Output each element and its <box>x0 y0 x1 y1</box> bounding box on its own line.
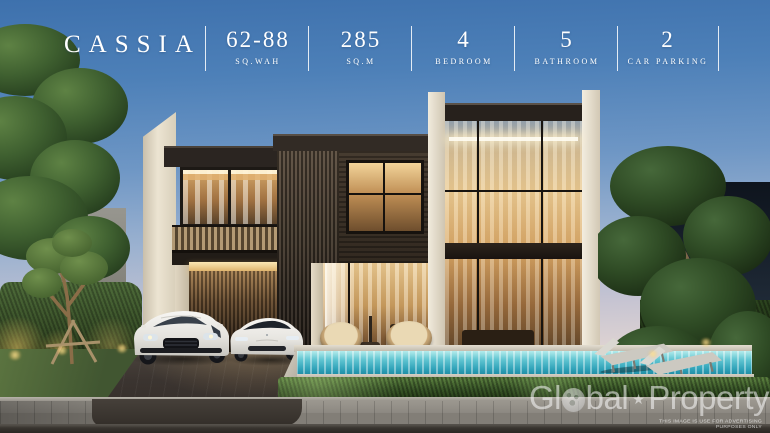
spec-label: SQ.WAH <box>212 57 304 66</box>
disclaimer-text: THIS IMAGE IS USE FOR ADVERTISING PURPOS… <box>638 418 762 429</box>
spec-bathroom: 5 BATHROOM <box>521 28 613 66</box>
glass-frame <box>445 190 582 192</box>
globe-icon <box>562 388 585 412</box>
window-mullion <box>348 193 422 195</box>
watermark-text: bal <box>586 379 629 417</box>
divider <box>718 26 719 71</box>
spec-value: 5 <box>521 28 613 52</box>
spec-label: BATHROOM <box>521 57 613 66</box>
specs-bar: CASSIA 62-88 SQ.WAH 285 SQ.M 4 BEDROOM 5… <box>0 0 770 86</box>
balcony-slat-railing <box>172 225 290 253</box>
brand-name: CASSIA <box>56 31 176 59</box>
roof-overhang-left <box>164 146 290 167</box>
garden-light <box>116 344 128 353</box>
driveway-apron <box>92 399 302 426</box>
floor-slab-band <box>445 243 582 259</box>
interior-ceiling-light <box>449 137 578 141</box>
window-mullion <box>228 168 231 226</box>
porsche-suv <box>128 296 236 366</box>
spec-value: 285 <box>315 28 407 52</box>
spec-label: SQ.M <box>315 57 407 66</box>
garden-light <box>56 346 68 355</box>
divider <box>411 26 412 71</box>
garden-light <box>648 350 658 358</box>
spec-parking: 2 CAR PARKING <box>622 28 714 66</box>
divider <box>514 26 515 71</box>
young-tree-with-supports <box>22 228 122 368</box>
spec-value: 4 <box>418 28 510 52</box>
garden-light <box>8 350 22 360</box>
glass-frame <box>477 121 479 358</box>
property-advertisement: Glbal★Property THIS IMAGE IS USE FOR ADV… <box>0 0 770 433</box>
watermark-text: Gl <box>529 379 561 417</box>
spec-sqm: 285 SQ.M <box>315 28 407 66</box>
divider <box>308 26 309 71</box>
divider <box>617 26 618 71</box>
double-height-glass-facade <box>445 121 582 358</box>
window-mullion <box>383 162 385 232</box>
glass-frame <box>541 121 543 358</box>
garden-light <box>700 338 712 347</box>
spec-label: CAR PARKING <box>622 57 714 66</box>
watermark-text: Property <box>648 379 769 417</box>
spec-label: BEDROOM <box>418 57 510 66</box>
spec-area: 62-88 SQ.WAH <box>212 28 304 66</box>
glass-facade-header <box>445 103 582 121</box>
star-icon: ★ <box>632 391 644 408</box>
spec-bedroom: 4 BEDROOM <box>418 28 510 66</box>
upper-window <box>346 160 424 234</box>
spec-value: 62-88 <box>212 28 304 52</box>
roof-overhang-mid <box>273 134 433 151</box>
spec-value: 2 <box>622 28 714 52</box>
divider <box>205 26 206 71</box>
watermark: Glbal★Property <box>529 381 769 415</box>
white-pillar-left <box>428 92 445 358</box>
